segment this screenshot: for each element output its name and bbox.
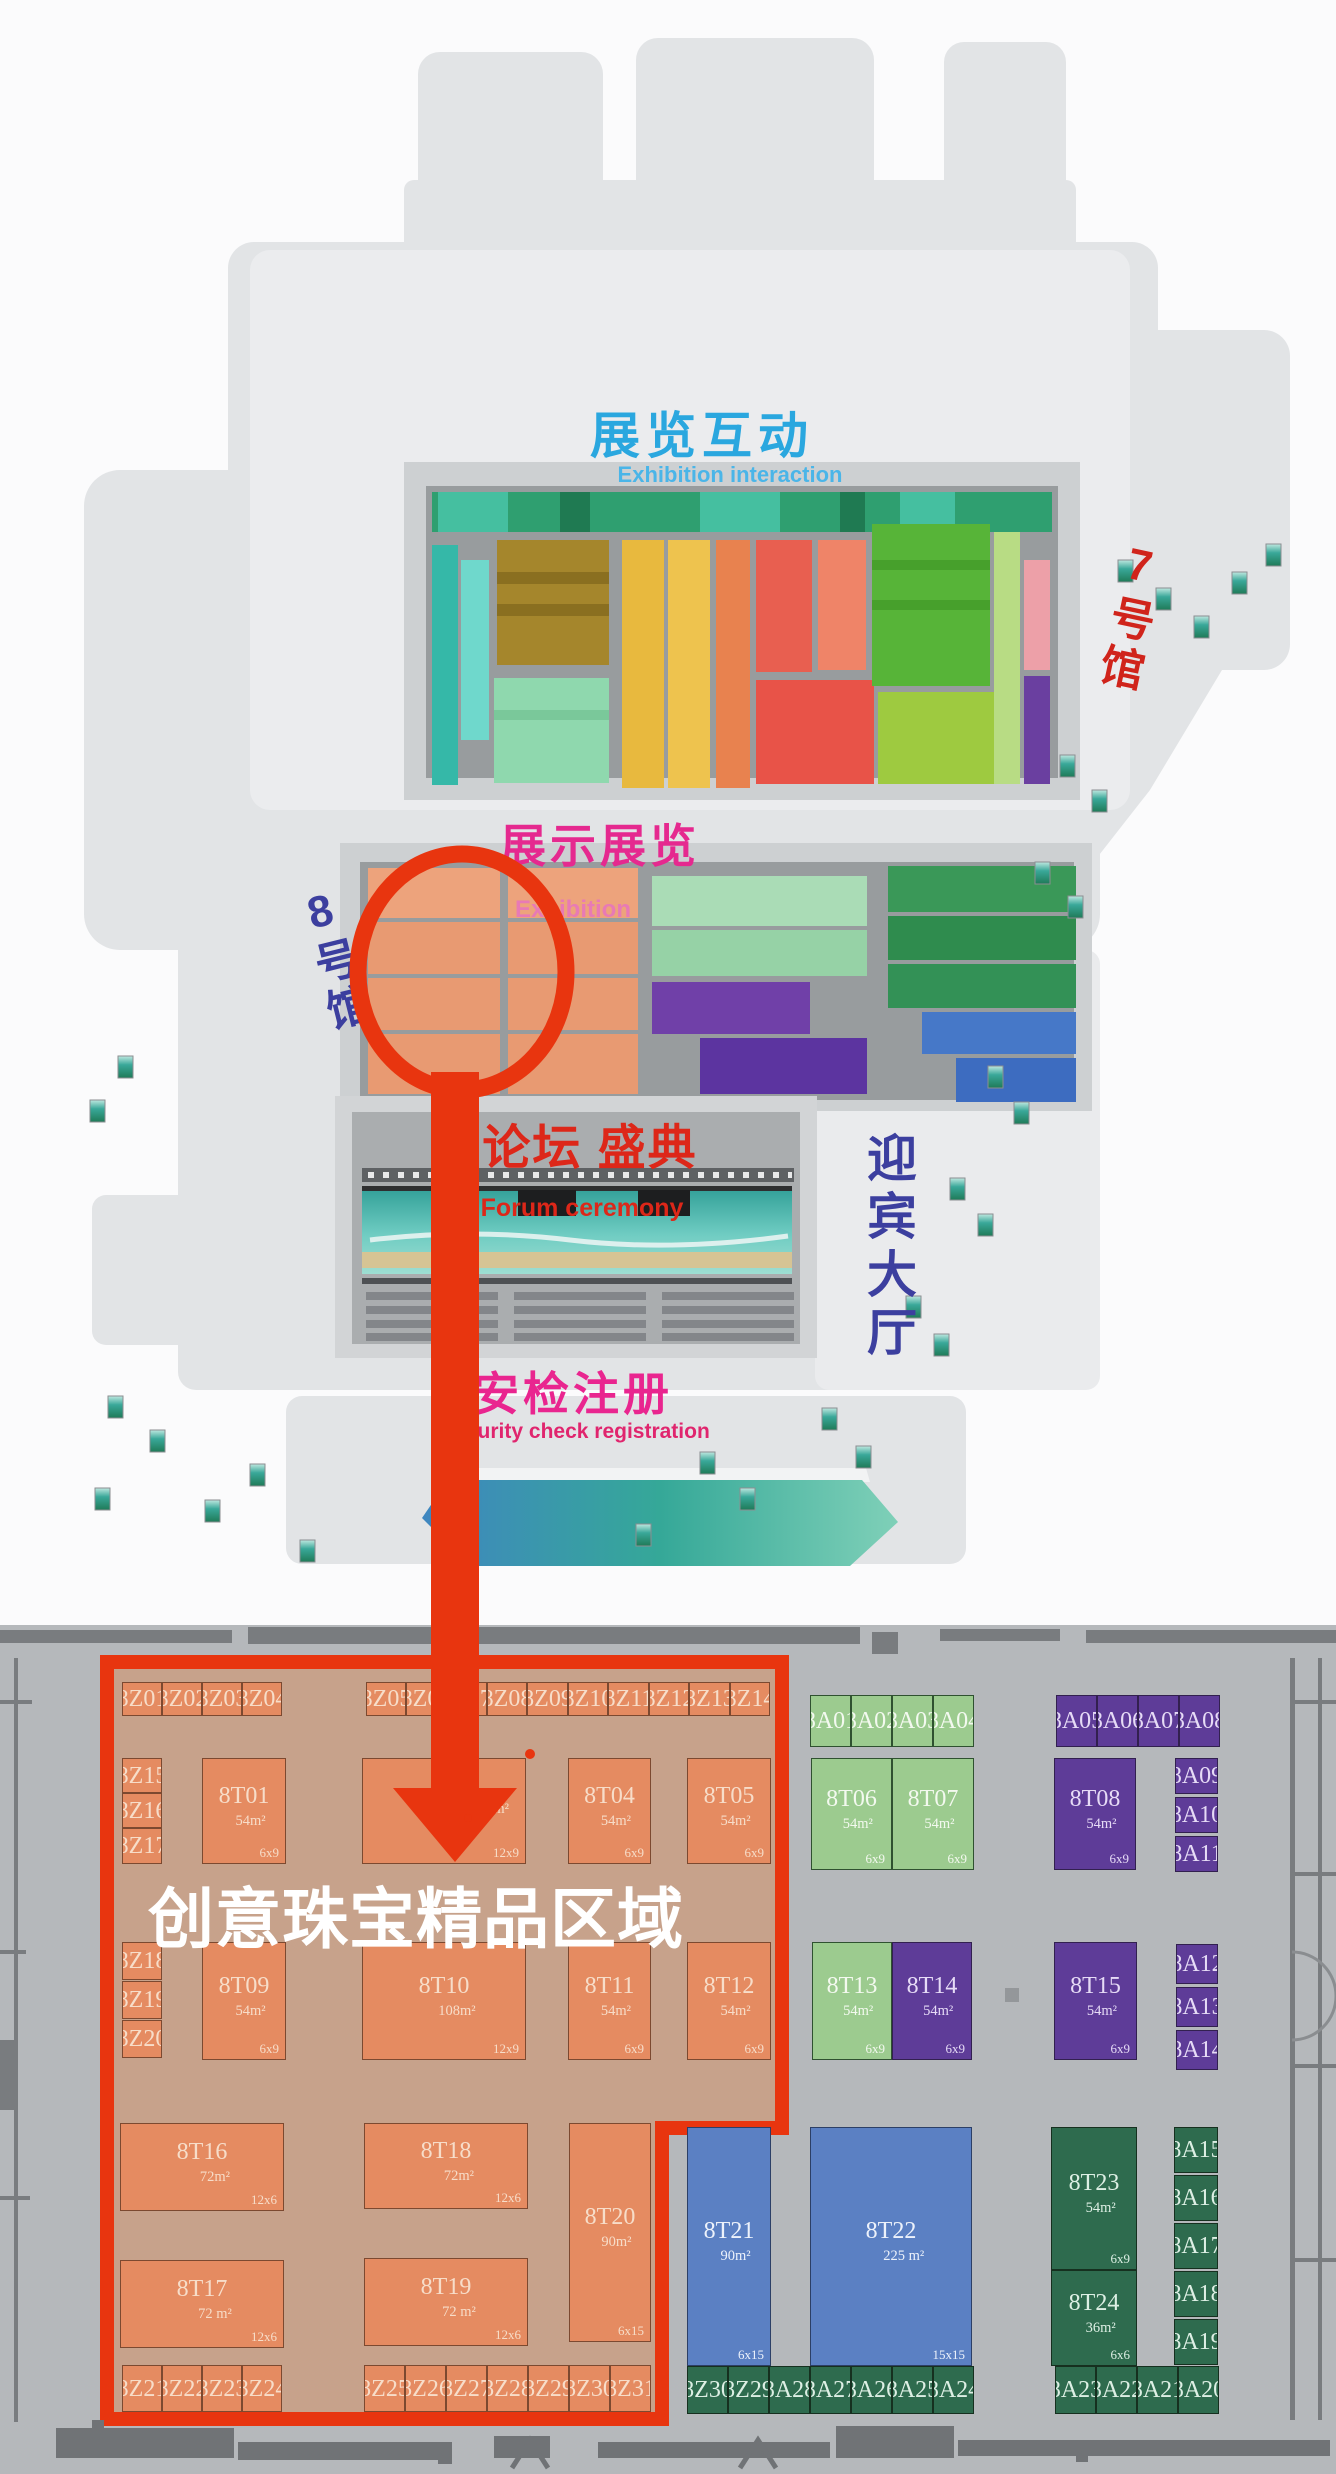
jewelry-area-caption: 创意珠宝精品区域 [148, 1866, 684, 1962]
booth-8T04: 8T0454m²6x9 [568, 1758, 651, 1864]
booth-8Z15: 8Z15 [122, 1758, 162, 1793]
booth-8T21: 8T2190m²6x15 [687, 2127, 771, 2366]
booth-8T23: 8T2354m²6x9 [1051, 2127, 1137, 2270]
booth-8T13: 8T1354m²6x9 [812, 1942, 892, 2060]
booth-8Z31: 8Z31 [610, 2365, 651, 2412]
booth-8T18: 8T1872m²12x6 [364, 2123, 528, 2209]
booth-8A03: 8A03 [892, 1695, 933, 1747]
booth-8A24: 8A24 [933, 2366, 974, 2414]
booth-8T20: 8T2090m²6x15 [569, 2123, 651, 2342]
booth-8A26: 8A26 [851, 2366, 892, 2414]
booth-8A12: 8A12 [1176, 1944, 1218, 1984]
booth-8T08: 8T0854m²6x9 [1054, 1758, 1136, 1870]
booth-8Z07: 8Z07 [446, 1682, 487, 1716]
booth-8A07: 8A07 [1138, 1695, 1179, 1747]
booth-8T06: 8T0654m²6x9 [811, 1758, 892, 1870]
booth-8Z19: 8Z19 [122, 1981, 162, 2019]
booth-8T07: 8T0754m²6x9 [892, 1758, 974, 1870]
booth-8A02: 8A02 [851, 1695, 892, 1747]
booth-8A08: 8A08 [1179, 1695, 1220, 1747]
booth-8A01: 8A01 [810, 1695, 851, 1747]
booth-8Z28: 8Z28 [487, 2365, 528, 2412]
booth-8T17: 8T1772 m²12x6 [120, 2260, 284, 2348]
booth-8Z16: 8Z16 [122, 1793, 162, 1828]
booth-8Z05: 8Z05 [366, 1682, 406, 1716]
booth-8T01: 8T0154m²6x9 [202, 1758, 286, 1864]
booth-8A27: 8A27 [810, 2366, 851, 2414]
booth-8A17: 8A17 [1174, 2223, 1218, 2269]
booth-8Z12: 8Z12 [649, 1682, 689, 1716]
booth-8A15: 8A15 [1174, 2127, 1218, 2173]
booth-8A09: 8A09 [1175, 1758, 1218, 1794]
booth-8Z08: 8Z08 [487, 1682, 527, 1716]
booth-8Z06: 8Z06 [406, 1682, 446, 1716]
booth-8Z29: 8Z29 [728, 2366, 769, 2414]
booth-8Z09: 8Z09 [527, 1682, 568, 1716]
booth-8A22: 8A22 [1096, 2366, 1137, 2414]
booth-8A23: 8A23 [1055, 2366, 1096, 2414]
booth-8Z22: 8Z22 [162, 2365, 202, 2412]
booth-8Z01: 8Z01 [122, 1682, 162, 1716]
venue-map-poster: 展览互动 Exhibition interaction 7号馆 展示展览 Exh… [0, 0, 1336, 2474]
booth-8A28: 8A28 [769, 2366, 810, 2414]
booth-8A04: 8A04 [933, 1695, 974, 1747]
booth-8A05: 8A05 [1056, 1695, 1097, 1747]
booth-8T16: 8T1672m²12x6 [120, 2123, 284, 2211]
booth-8Z30: 8Z30 [569, 2365, 610, 2412]
booth-8A25: 8A25 [892, 2366, 933, 2414]
booth-8T12: 8T1254m²6x9 [687, 1942, 771, 2060]
booth-8Z24: 8Z24 [242, 2365, 282, 2412]
booth-8Z14: 8Z14 [730, 1682, 770, 1716]
booth-8T19: 8T1972 m²12x6 [364, 2258, 528, 2346]
booth-8Z03: 8Z03 [202, 1682, 242, 1716]
booth-8T05: 8T0554m²6x9 [687, 1758, 771, 1864]
booth-8A10: 8A10 [1175, 1797, 1218, 1833]
booth-8Z30: 8Z30 [687, 2366, 728, 2414]
booth-8Z21: 8Z21 [122, 2365, 162, 2412]
booth-8A18: 8A18 [1174, 2271, 1218, 2317]
booth-8Z26: 8Z26 [405, 2365, 446, 2412]
booth-8A11: 8A11 [1175, 1836, 1218, 1872]
floorplan-booths: 8Z018Z028Z038Z048Z058Z068Z078Z088Z098Z10… [0, 0, 1336, 2474]
booth-8A16: 8A16 [1174, 2175, 1218, 2221]
booth-8Z27: 8Z27 [446, 2365, 487, 2412]
booth-8Z04: 8Z04 [242, 1682, 282, 1716]
booth-8Z13: 8Z13 [689, 1682, 730, 1716]
booth-8Z29: 8Z29 [528, 2365, 569, 2412]
booth-8A13: 8A13 [1176, 1987, 1218, 2027]
booth-8T22: 8T22225 m²15x15 [810, 2127, 972, 2366]
booth-8A14: 8A14 [1176, 2030, 1218, 2070]
booth-8A06: 8A06 [1097, 1695, 1138, 1747]
booth-row2-center: m²12x9 [362, 1758, 526, 1864]
booth-8Z20: 8Z20 [122, 2020, 162, 2058]
booth-8A19: 8A19 [1174, 2319, 1218, 2365]
booth-8Z10: 8Z10 [568, 1682, 608, 1716]
booth-8A21: 8A21 [1137, 2366, 1178, 2414]
booth-8Z02: 8Z02 [162, 1682, 202, 1716]
booth-8T24: 8T2436m²6x6 [1051, 2270, 1137, 2366]
booth-8Z11: 8Z11 [608, 1682, 649, 1716]
booth-8Z25: 8Z25 [364, 2365, 405, 2412]
booth-8T15: 8T1554m²6x9 [1054, 1942, 1137, 2060]
booth-8Z23: 8Z23 [202, 2365, 242, 2412]
booth-8Z17: 8Z17 [122, 1828, 162, 1864]
booth-8A20: 8A20 [1178, 2366, 1219, 2414]
booth-8T14: 8T1454m²6x9 [892, 1942, 972, 2060]
